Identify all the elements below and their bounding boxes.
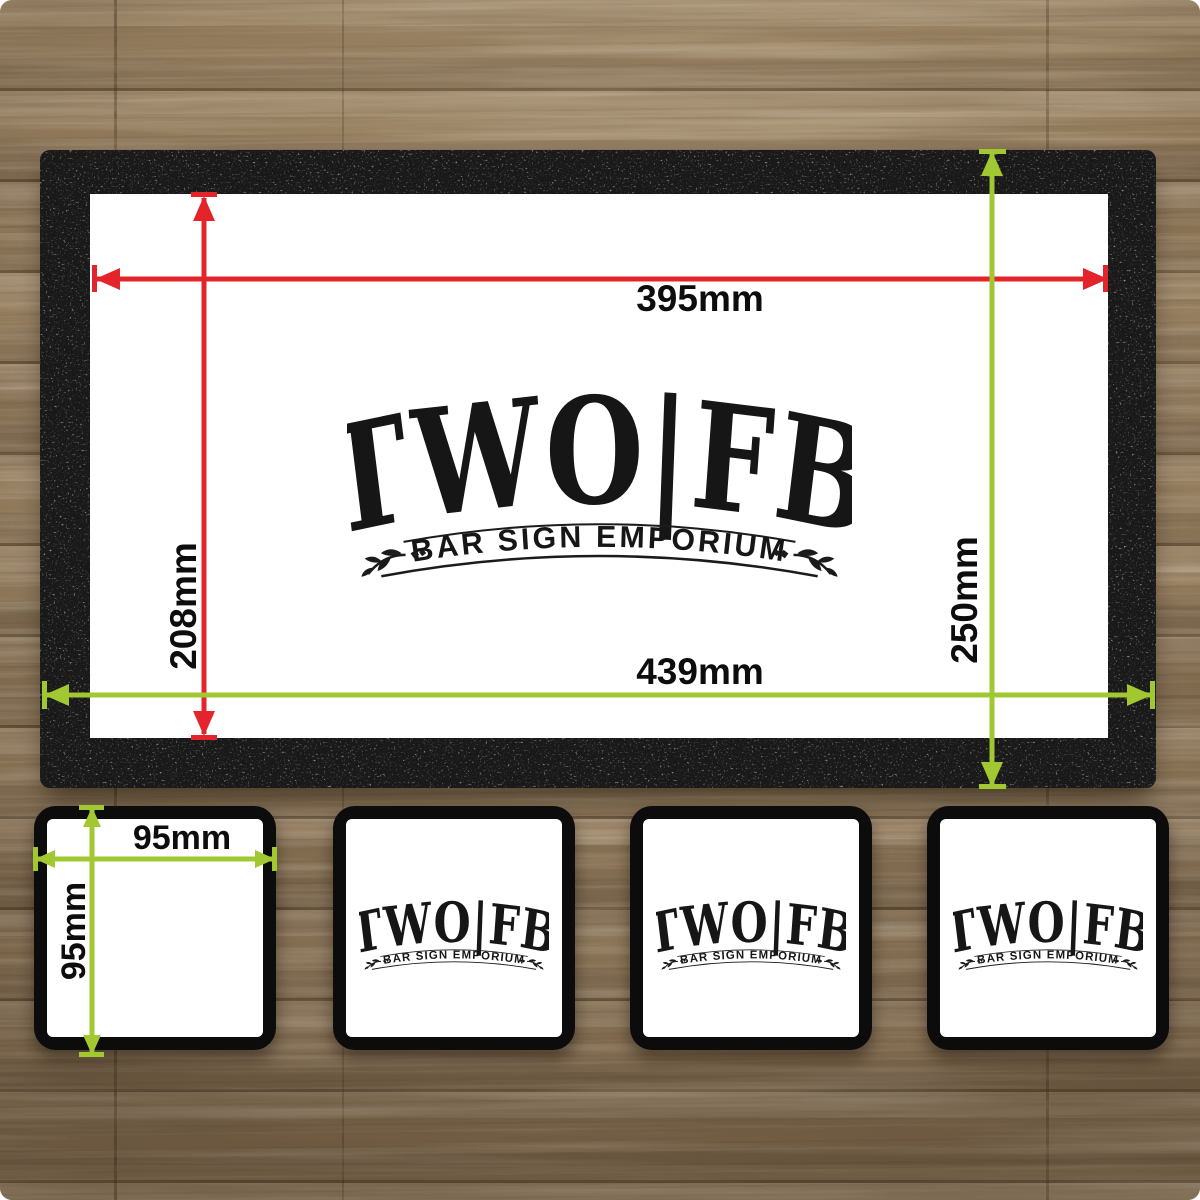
twofb-logo bbox=[347, 352, 852, 579]
twofb-logo bbox=[359, 885, 549, 971]
coaster-print-area bbox=[346, 819, 562, 1037]
coaster-with-logo-2 bbox=[630, 806, 872, 1050]
coaster-blank bbox=[34, 806, 276, 1050]
coaster-with-logo-1 bbox=[333, 806, 575, 1050]
bar-runner-mat bbox=[40, 150, 1156, 788]
coaster-print-area bbox=[940, 819, 1156, 1037]
coaster-print-area bbox=[47, 819, 263, 1037]
twofb-logo bbox=[953, 885, 1143, 971]
coaster-with-logo-3 bbox=[927, 806, 1169, 1050]
twofb-logo bbox=[656, 885, 846, 971]
coaster-print-area bbox=[643, 819, 859, 1037]
product-photo: TWO|FB BAR SIGN EMPORIUM bbox=[0, 0, 1200, 1200]
bar-runner-print-area bbox=[90, 194, 1108, 738]
